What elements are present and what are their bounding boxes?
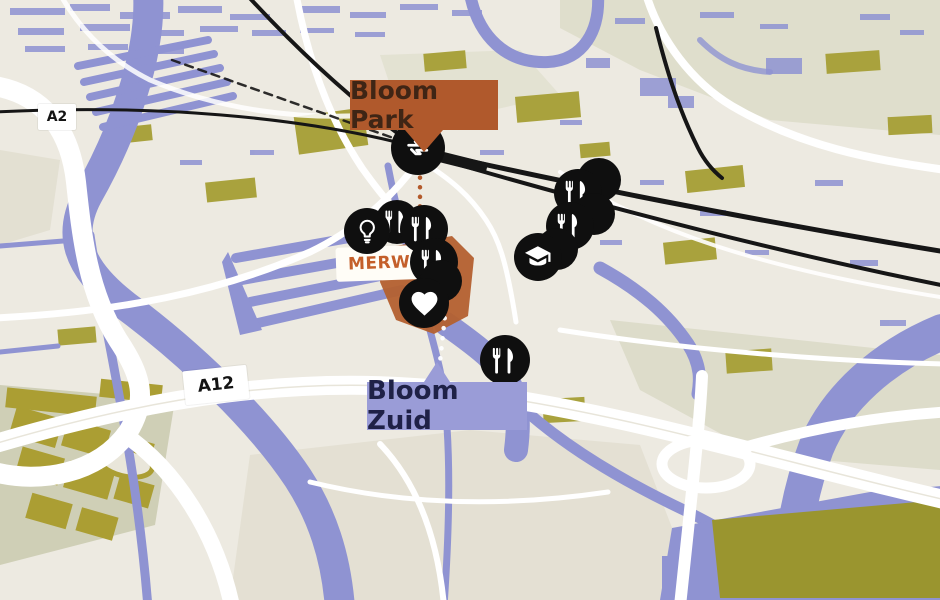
bloom-zuid-label-text: Bloom Zuid: [367, 376, 527, 436]
bloom-park-label-text: Bloom Park: [350, 76, 498, 134]
road-badge-a12: A12: [182, 365, 249, 406]
map-canvas: MERW A2 A12 Bloom Park Bloom Zuid: [0, 0, 940, 600]
bloom-park-label[interactable]: Bloom Park: [350, 80, 498, 130]
labels-layer: A2 A12 Bloom Park Bloom Zuid: [0, 0, 940, 600]
road-badge-a2: A2: [38, 104, 76, 130]
road-badge-a12-text: A12: [197, 373, 236, 397]
bloom-zuid-label[interactable]: Bloom Zuid: [367, 382, 527, 430]
road-badge-a2-text: A2: [47, 109, 68, 125]
